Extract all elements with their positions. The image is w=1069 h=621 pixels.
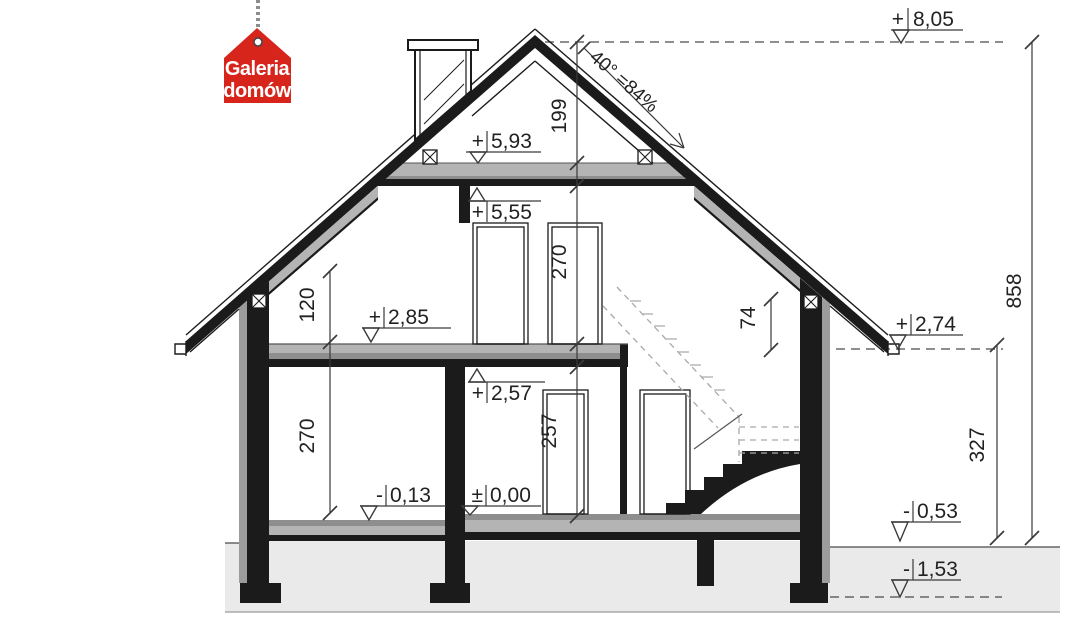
level-value: 1,53 xyxy=(917,558,958,581)
dim-ridge-to-collar: 199 xyxy=(548,98,571,133)
level-marker-collar-bottom: + 5,55 xyxy=(468,188,541,224)
ground-door-left-inner xyxy=(547,394,584,514)
purlin-marker-icon xyxy=(638,150,652,164)
left-gutter xyxy=(175,344,186,354)
attic-slab-end-cap xyxy=(620,344,628,367)
level-value: 2,57 xyxy=(491,382,532,405)
ground-door-right xyxy=(640,390,690,514)
dim-knee-wall-height: 120 xyxy=(296,287,319,322)
chimney-cap xyxy=(408,40,478,50)
floor-slab-layer xyxy=(465,520,800,532)
right-wall xyxy=(800,278,822,583)
house-cross-section-drawing: 199 270 257 120 270 74 858 327 40° =84% … xyxy=(0,0,1069,621)
dim-eave-above-ground: 327 xyxy=(966,427,989,462)
garage-slab-layer xyxy=(269,526,445,535)
logo: Galeria domów xyxy=(223,0,291,103)
level-marker-ground-floor: ± 0,00 xyxy=(461,484,541,515)
attic-door-left xyxy=(473,223,528,344)
level-marker-ridge: + 8,05 xyxy=(891,8,963,43)
attic-floor-slab xyxy=(247,344,628,367)
collar-ceiling xyxy=(363,163,709,186)
middle-footing xyxy=(430,583,470,603)
level-marker-terrain: - 0,53 xyxy=(891,500,961,541)
floor-slab-screed xyxy=(465,514,800,520)
dim-attic-room-height: 270 xyxy=(548,244,571,279)
ground-floor-slab xyxy=(247,514,800,541)
ground-door-left xyxy=(543,390,588,514)
dimension-lines: 199 270 257 120 270 74 858 327 xyxy=(296,35,1039,545)
stairwell-wall-edge xyxy=(620,367,627,516)
level-value: 2,74 xyxy=(915,313,956,336)
level-value: 5,55 xyxy=(491,201,532,224)
attic-door-right xyxy=(548,223,602,344)
dim-ground-ceiling-height: 257 xyxy=(538,413,561,448)
level-sign: - xyxy=(376,484,383,507)
collar-insulation xyxy=(374,163,698,176)
level-sign: ± xyxy=(471,484,483,507)
attic-slab-layer xyxy=(269,353,628,359)
attic-slab-structure xyxy=(247,359,628,367)
level-marker-eave: + 2,74 xyxy=(889,313,963,349)
floor-slab-structure xyxy=(465,532,800,540)
chimney xyxy=(408,40,478,223)
level-marker-collar-top: + 5,93 xyxy=(466,130,541,163)
stair-handrail-line xyxy=(694,414,742,449)
section-canvas: 199 270 257 120 270 74 858 327 40° =84% … xyxy=(0,0,1069,621)
roof-insulation-left xyxy=(269,186,378,292)
stair-support-column xyxy=(697,540,714,586)
level-value: 5,93 xyxy=(491,130,532,153)
left-footing xyxy=(240,583,281,603)
stair-hidden-nosings xyxy=(630,301,725,390)
roof-insulation-right xyxy=(694,186,800,289)
level-marker-ground-ceiling: + 2,57 xyxy=(468,369,545,405)
level-marker-garage-floor: - 0,13 xyxy=(360,484,446,520)
logo-line1: Galeria xyxy=(225,58,291,80)
collar-screed xyxy=(371,176,701,179)
dim-total-height: 858 xyxy=(1003,273,1026,308)
level-value: 2,85 xyxy=(388,306,429,329)
chimney-shaft-below-ceiling xyxy=(459,186,470,223)
door-frames xyxy=(473,223,690,514)
level-sign: + xyxy=(472,382,484,405)
logo-line2: domów xyxy=(223,80,291,102)
garage-slab-screed xyxy=(269,520,445,526)
level-sign: + xyxy=(369,306,381,329)
middle-bearing-wall xyxy=(445,367,465,583)
level-value: 8,05 xyxy=(913,8,954,31)
level-marker-attic-floor: + 2,85 xyxy=(362,306,451,342)
stair-hidden-landing-lines xyxy=(739,427,799,453)
level-value: 0,53 xyxy=(917,500,958,523)
level-sign: + xyxy=(896,313,908,336)
level-sign: + xyxy=(892,8,904,31)
collar-structure xyxy=(363,179,709,186)
level-sign: + xyxy=(472,201,484,224)
purlin-marker-icon xyxy=(423,150,437,164)
attic-door-left-inner xyxy=(477,227,524,344)
garage-slab-structure xyxy=(247,535,445,541)
dim-eave-above-knee: 74 xyxy=(737,306,760,330)
left-eave-fascia xyxy=(186,309,239,356)
roof-liner-left xyxy=(269,197,378,295)
right-footing xyxy=(790,583,828,603)
level-value: 0,13 xyxy=(390,484,431,507)
purlin-marker-icon xyxy=(252,294,266,308)
level-sign: - xyxy=(903,558,910,581)
left-wall-outer-finish xyxy=(239,300,247,583)
roof-slope-right xyxy=(535,35,888,354)
logo-tag-hole-icon xyxy=(254,38,262,46)
ground-door-right-inner xyxy=(644,394,686,514)
level-sign: + xyxy=(472,130,484,153)
right-wall-outer-finish xyxy=(822,297,830,583)
level-sign: - xyxy=(903,500,910,523)
dim-ground-room-height: 270 xyxy=(296,418,319,453)
level-value: 0,00 xyxy=(490,484,531,507)
purlin-marker-icon xyxy=(804,295,818,309)
